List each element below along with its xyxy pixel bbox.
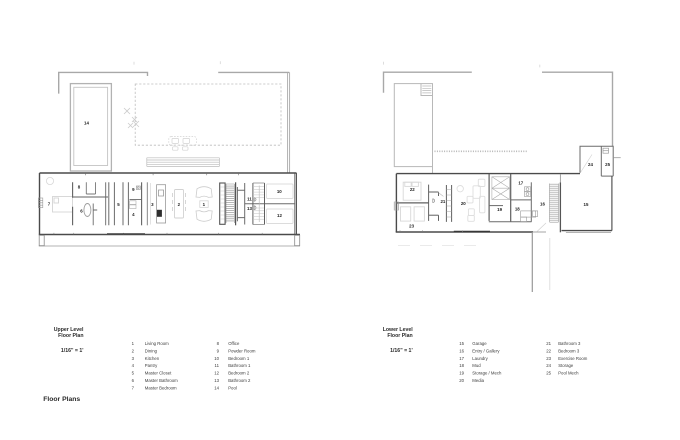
svg-text:10: 10: [277, 189, 282, 194]
svg-text:24: 24: [546, 363, 551, 368]
svg-text:Master Bedroom: Master Bedroom: [145, 385, 177, 390]
svg-text:Bathroom 1: Bathroom 1: [228, 363, 251, 368]
svg-text:Bedroom 1: Bedroom 1: [228, 356, 250, 361]
svg-text:25: 25: [546, 371, 551, 376]
svg-text:23: 23: [546, 356, 551, 361]
svg-text:Floor Plan: Floor Plan: [58, 333, 83, 339]
svg-text:18: 18: [515, 206, 520, 211]
svg-text:20: 20: [461, 201, 466, 206]
svg-text:Bathroom 2: Bathroom 2: [228, 378, 251, 383]
svg-text:11: 11: [215, 363, 220, 368]
svg-text:16: 16: [459, 348, 464, 353]
svg-text:13: 13: [247, 206, 252, 211]
svg-text:Bedroom 2: Bedroom 2: [228, 371, 250, 376]
svg-text:19: 19: [497, 207, 502, 212]
svg-text:17: 17: [518, 181, 523, 186]
svg-text:14: 14: [214, 385, 219, 390]
svg-text:Bedroom 3: Bedroom 3: [558, 348, 580, 353]
svg-text:15: 15: [459, 341, 464, 346]
svg-text:Storage: Storage: [558, 363, 574, 368]
svg-text:24: 24: [588, 162, 593, 167]
svg-text:12: 12: [214, 371, 219, 376]
svg-text:Pool Mech: Pool Mech: [558, 371, 579, 376]
svg-text:Master Closet: Master Closet: [145, 371, 172, 376]
svg-text:Master Bathroom: Master Bathroom: [145, 378, 178, 383]
svg-text:Mud: Mud: [472, 363, 481, 368]
svg-text:1/16" = 1': 1/16" = 1': [61, 348, 84, 354]
svg-text:20: 20: [459, 378, 464, 383]
svg-text:22: 22: [410, 187, 415, 192]
svg-text:Office: Office: [228, 341, 240, 346]
svg-text:Bathroom 3: Bathroom 3: [558, 341, 581, 346]
svg-text:Exercise Room: Exercise Room: [558, 356, 588, 361]
svg-text:Living Room: Living Room: [145, 341, 169, 346]
svg-text:Pool: Pool: [228, 385, 237, 390]
svg-text:Floor Plans: Floor Plans: [43, 396, 80, 403]
svg-text:16: 16: [540, 202, 545, 207]
svg-text:Garage: Garage: [472, 341, 487, 346]
svg-text:Pantry: Pantry: [145, 363, 158, 368]
svg-text:12: 12: [277, 213, 282, 218]
svg-text:13: 13: [214, 378, 219, 383]
svg-text:11: 11: [247, 197, 252, 202]
svg-text:21: 21: [440, 199, 445, 204]
svg-text:Dining: Dining: [145, 348, 158, 353]
svg-text:19: 19: [459, 371, 464, 376]
svg-text:15: 15: [584, 202, 589, 207]
svg-text:Floor Plan: Floor Plan: [387, 333, 412, 339]
svg-text:14: 14: [84, 121, 89, 126]
svg-text:1/16" = 1': 1/16" = 1': [390, 348, 413, 354]
svg-text:18: 18: [459, 363, 464, 368]
svg-text:22: 22: [546, 348, 551, 353]
svg-text:Storage / Mech: Storage / Mech: [472, 371, 502, 376]
svg-text:Entry / Gallery: Entry / Gallery: [472, 348, 500, 353]
svg-text:17: 17: [459, 356, 464, 361]
svg-text:Kitchen: Kitchen: [145, 356, 160, 361]
svg-text:Powder Room: Powder Room: [228, 348, 256, 353]
svg-text:25: 25: [605, 162, 610, 167]
svg-text:Laundry: Laundry: [472, 356, 488, 361]
svg-text:10: 10: [214, 356, 219, 361]
svg-text:Media: Media: [472, 378, 484, 383]
svg-text:21: 21: [546, 341, 551, 346]
svg-text:23: 23: [409, 223, 414, 228]
